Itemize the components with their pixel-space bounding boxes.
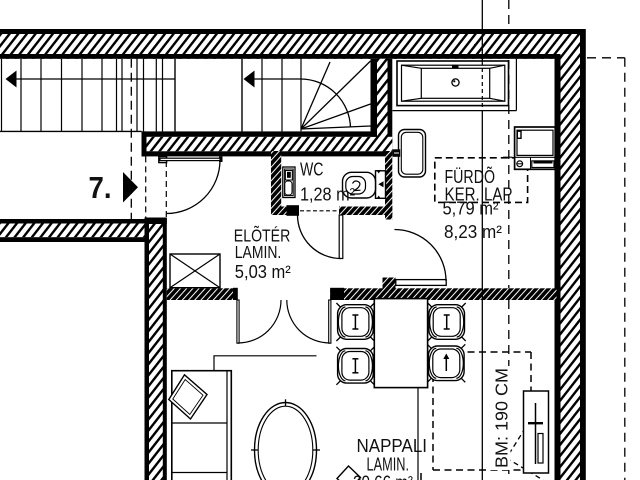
svg-text:LAMIN.: LAMIN. xyxy=(367,455,410,475)
svg-text:WC: WC xyxy=(300,160,324,180)
svg-text:BM: 190 CM: BM: 190 CM xyxy=(492,368,512,468)
svg-text:LAMIN.: LAMIN. xyxy=(235,242,281,262)
svg-text:NAPPALI: NAPPALI xyxy=(357,436,428,456)
svg-text:7.: 7. xyxy=(89,170,112,205)
svg-text:5,79 m²: 5,79 m² xyxy=(443,198,499,218)
svg-text:1,28 m²: 1,28 m² xyxy=(300,184,355,204)
svg-text:8,23 m²: 8,23 m² xyxy=(444,222,502,242)
svg-text:20,66 m²: 20,66 m² xyxy=(353,473,413,480)
svg-text:5,03 m²: 5,03 m² xyxy=(235,262,291,282)
